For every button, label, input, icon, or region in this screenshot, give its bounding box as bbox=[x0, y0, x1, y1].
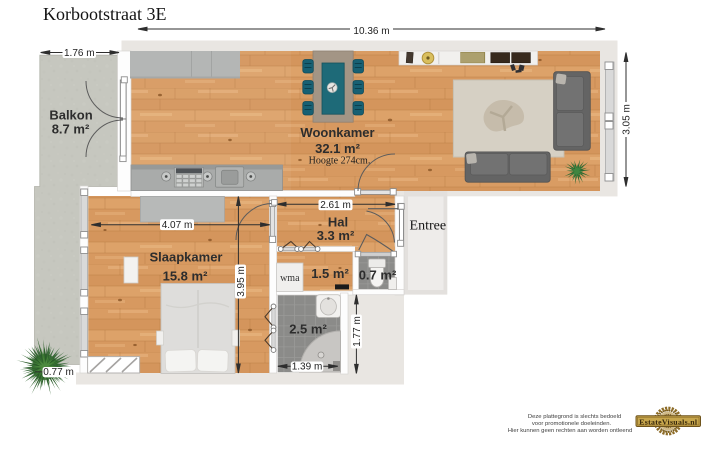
svg-text:2.5 m²: 2.5 m² bbox=[289, 322, 327, 337]
svg-text:Hoogte 274cm.: Hoogte 274cm. bbox=[309, 156, 371, 167]
svg-text:1.5 m²: 1.5 m² bbox=[311, 266, 349, 281]
svg-text:1.39 m: 1.39 m bbox=[292, 362, 323, 373]
svg-text:15.8 m²: 15.8 m² bbox=[163, 269, 208, 284]
svg-text:10.36 m: 10.36 m bbox=[353, 26, 389, 37]
svg-text:4.07 m: 4.07 m bbox=[162, 220, 193, 231]
svg-text:wma: wma bbox=[280, 273, 300, 284]
svg-text:Hier kunnen geen rechten aan w: Hier kunnen geen rechten aan worden ontl… bbox=[508, 428, 632, 434]
svg-text:Deze plattegrond is slechts be: Deze plattegrond is slechts bedoeld bbox=[528, 414, 621, 420]
svg-text:3.3 m²: 3.3 m² bbox=[317, 228, 355, 243]
svg-text:3.05 m: 3.05 m bbox=[621, 104, 632, 135]
svg-text:0.7 m²: 0.7 m² bbox=[359, 268, 397, 283]
svg-text:8.7 m²: 8.7 m² bbox=[52, 122, 90, 137]
svg-text:3.95 m: 3.95 m bbox=[236, 266, 247, 297]
svg-text:1.76 m: 1.76 m bbox=[64, 48, 95, 59]
svg-text:Entree: Entree bbox=[410, 219, 447, 234]
svg-text:Balkon: Balkon bbox=[49, 108, 92, 123]
svg-text:voor promotionele doeleinden.: voor promotionele doeleinden. bbox=[532, 421, 612, 427]
svg-text:Woonkamer: Woonkamer bbox=[300, 125, 374, 140]
svg-text:Korbootstraat 3E: Korbootstraat 3E bbox=[43, 4, 166, 24]
svg-text:0.77 m: 0.77 m bbox=[43, 367, 74, 378]
svg-text:Slaapkamer: Slaapkamer bbox=[150, 250, 223, 265]
svg-text:32.1 m²: 32.1 m² bbox=[315, 141, 360, 156]
svg-text:2.61 m: 2.61 m bbox=[320, 200, 351, 211]
svg-text:1.77 m: 1.77 m bbox=[352, 316, 363, 347]
svg-text:EstateVisuals.nl: EstateVisuals.nl bbox=[639, 417, 698, 426]
